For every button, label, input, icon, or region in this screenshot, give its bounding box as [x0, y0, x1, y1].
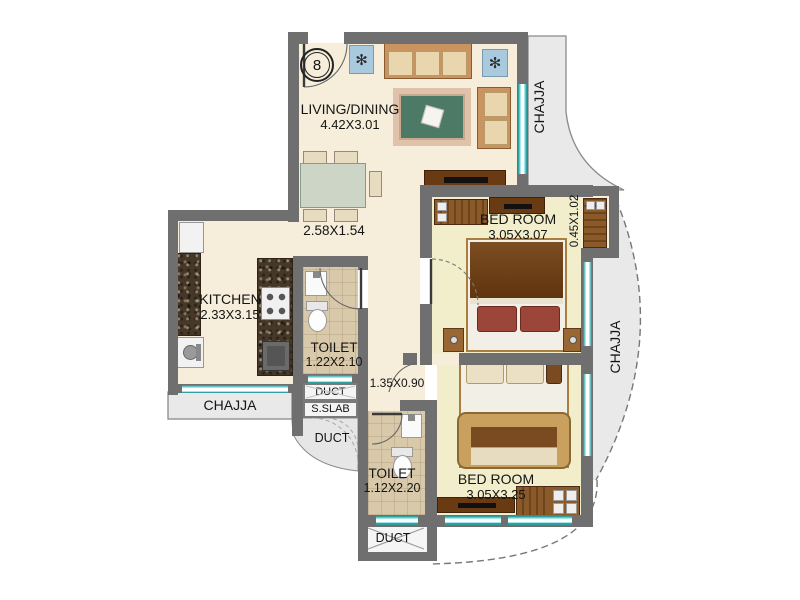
kitchen-dims: 2.33X3.15: [168, 307, 292, 322]
window-strip: [583, 374, 592, 456]
wall-segment: [403, 353, 417, 365]
pillow: [477, 306, 517, 332]
wall-segment: [292, 384, 303, 436]
duct-bottom-label: DUCT: [363, 531, 423, 546]
dining-table: [300, 163, 366, 208]
s-slab-label: S.SLAB: [311, 402, 350, 417]
chajja-bottom-left-label: CHAJJA: [170, 398, 290, 413]
duct-curved-label: DUCT: [303, 431, 361, 446]
wall-segment: [344, 32, 528, 44]
pillow: [520, 306, 560, 332]
nightstand: [443, 328, 464, 352]
bedroom-top-label: BED ROOM: [448, 212, 588, 227]
nightstand: [563, 328, 581, 352]
floor-plan: ✻ ✻: [0, 0, 800, 600]
pillow: [466, 362, 504, 384]
wc-bowl: [308, 309, 327, 332]
plant-glyph: ✻: [355, 51, 368, 69]
chajja-top-right-label: CHAJJA: [532, 57, 550, 157]
window-strip: [445, 516, 501, 525]
planter-icon: ✻: [349, 45, 374, 74]
wall-segment: [420, 197, 432, 258]
washbasin: [305, 271, 327, 296]
wall-segment: [609, 186, 619, 258]
window-strip: [376, 516, 418, 525]
floor-main-area: [368, 256, 420, 353]
window-strip: [182, 385, 288, 393]
dining-chair: [334, 209, 358, 222]
unit-number: 8: [313, 57, 321, 74]
sofa-main: [384, 43, 472, 79]
wall-segment: [358, 552, 437, 561]
bedroom-bottom-dims: 3.05X3.25: [426, 487, 566, 502]
chajja-mid-right-label: CHAJJA: [608, 297, 626, 397]
wall-segment: [400, 400, 437, 411]
wall-segment: [420, 304, 432, 365]
pillow: [546, 362, 562, 384]
dining-chair: [303, 209, 327, 222]
unit-number-badge: 8: [300, 48, 334, 82]
dining-chair: [369, 171, 382, 197]
dining-dims: 2.58X1.54: [282, 223, 386, 238]
bed: [466, 238, 567, 352]
wall-segment: [293, 256, 368, 267]
wall-segment: [459, 353, 593, 365]
settee: [457, 412, 571, 469]
toilet-top-dims: 1.22X2.10: [284, 355, 384, 370]
planter-icon: ✻: [482, 49, 508, 77]
plant-glyph: ✻: [489, 54, 502, 72]
sofa-side: [477, 87, 511, 149]
wall-segment: [168, 210, 299, 221]
wall-segment: [427, 527, 437, 560]
window-strip: [308, 375, 352, 383]
bedroom-top-dims: 3.05X3.07: [448, 227, 588, 242]
duct-label: DUCT: [315, 385, 346, 400]
window-strip: [583, 262, 592, 346]
window-strip: [518, 84, 527, 174]
pillow: [506, 362, 544, 384]
window-strip: [508, 516, 572, 525]
kitchen-label: KITCHEN: [168, 292, 292, 307]
s-slab-box: S.SLAB: [303, 401, 358, 418]
kitchen-sink: [177, 337, 204, 368]
niche-dims: 0.45X1.02: [568, 171, 584, 271]
blanket: [470, 242, 563, 298]
living-room-label: LIVING/DINING: [280, 102, 420, 117]
toilet-top-label: TOILET: [284, 340, 384, 355]
passage-dims: 1.35X0.90: [347, 376, 447, 391]
washbasin: [401, 414, 422, 438]
bedroom-bottom-label: BED ROOM: [426, 472, 566, 487]
wall-segment: [288, 32, 308, 44]
living-room-dims: 4.42X3.01: [280, 117, 420, 132]
refrigerator: [179, 222, 204, 253]
